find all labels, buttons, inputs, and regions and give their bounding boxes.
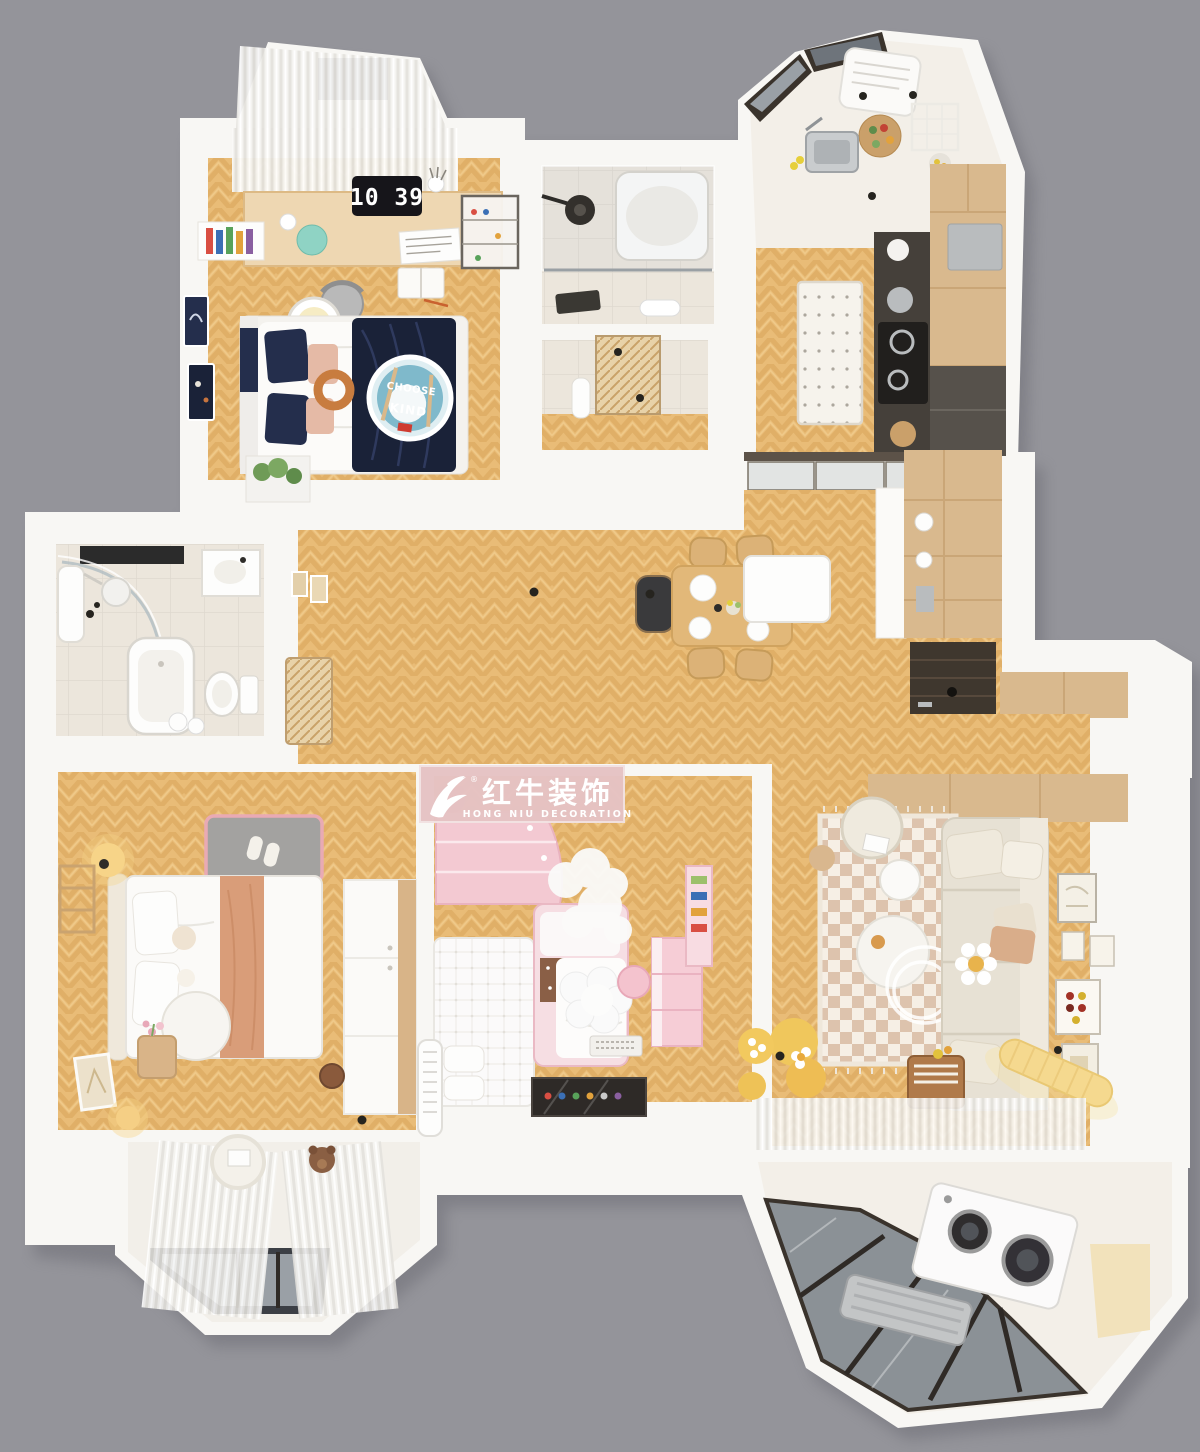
desk-tray: [297, 225, 327, 255]
bedside-lamp: [82, 834, 134, 886]
gray-bedside-mat: [206, 816, 322, 882]
plush-pillow: [177, 969, 195, 987]
room-kitchen: [744, 32, 1006, 490]
pedestal: [572, 378, 590, 418]
dining-chair-3: [687, 647, 725, 679]
leaning-art-frame: [75, 1054, 116, 1110]
armchair: [842, 798, 902, 858]
toy-display-case: [532, 1078, 646, 1116]
tall-wood-unit: [904, 450, 1002, 638]
cutting-board: [890, 421, 916, 447]
keyboard: [590, 1036, 642, 1056]
room-living: [756, 714, 1128, 1150]
master-pillow-1: [132, 891, 180, 956]
entry-door-niche: [910, 642, 996, 718]
dining-chair-1: [689, 537, 727, 569]
white-cabinet-band: [876, 488, 906, 638]
kids-chair: [618, 966, 650, 998]
kids-wardrobe: [436, 812, 562, 904]
side-table-round: [880, 860, 920, 900]
watermark-brand-en: HONG NIU DECORATION: [463, 809, 634, 820]
kettle: [887, 239, 909, 261]
toilet: [205, 672, 258, 716]
floorplan-canvas: 10 39: [0, 0, 1200, 1452]
kitchen-cabinets: [930, 164, 1006, 456]
white-sideboard: [744, 556, 830, 622]
vanity-sink: [202, 550, 260, 596]
stool: [320, 1064, 344, 1088]
croissant-plate: [871, 935, 885, 949]
microwave: [948, 224, 1002, 270]
fluffy-rug: [212, 1136, 264, 1188]
flip-clock-time: 10 39: [350, 185, 424, 211]
cup: [714, 604, 722, 612]
sliding-screen-door: [596, 336, 660, 414]
desk-paper: [399, 228, 461, 264]
kids-pillow-2: [444, 1076, 484, 1100]
mug: [280, 214, 296, 230]
kids-pillow-1: [444, 1046, 484, 1072]
pouf-small: [809, 845, 835, 871]
coffee-table-round: [857, 916, 929, 988]
west-curtain-2: [281, 1141, 398, 1319]
watermark-banner: ® 红牛装饰 HONG NIU DECORATION: [420, 766, 633, 822]
pillow-navy-2: [264, 393, 309, 446]
master-wardrobe: [344, 880, 416, 1114]
mirror-strip: [80, 546, 184, 564]
towel-roll: [640, 300, 680, 316]
dining-chair-4: [735, 648, 773, 681]
room-bathroom-left: [56, 544, 264, 736]
dining-floor-left: [298, 530, 744, 764]
kitchen-runner-rug: [798, 282, 862, 424]
room-bedroom-master: [58, 772, 416, 1138]
towel-1: [169, 713, 187, 731]
display-cabinet: [462, 196, 518, 268]
living-sheer-curtain: [756, 1098, 1086, 1150]
sofa-pillow-tan: [988, 925, 1036, 965]
kids-floor-bed: [434, 938, 534, 1106]
sofa-pillow-2: [1000, 840, 1044, 880]
pillow-navy-1: [264, 328, 310, 383]
black-chair: [636, 576, 674, 632]
air-purifier: [418, 1040, 442, 1136]
room-bathroom-top: [542, 166, 714, 324]
sofa-pillow-1: [945, 828, 1007, 879]
hanging-cabinet: [1000, 672, 1128, 718]
floor-lamp-2: [108, 1098, 148, 1138]
towel-2: [188, 718, 204, 734]
curtain-spill: [232, 128, 458, 192]
room-kids: [418, 776, 774, 1136]
wc-wood-strip: [542, 414, 708, 450]
cooktop: [878, 322, 928, 404]
balcony-west: [128, 1136, 420, 1322]
flip-clock: 10 39: [350, 176, 424, 216]
apartment-3d-floorplan-render: 10 39: [0, 0, 1200, 1452]
navy-throw: [240, 328, 258, 392]
watermark-brand-cn: 红牛装饰: [482, 776, 614, 810]
rattan-bench: [286, 658, 332, 744]
kitchen-counter: [874, 232, 932, 458]
ac-unit: [838, 47, 922, 117]
pot: [887, 287, 913, 313]
planter: [246, 456, 310, 502]
kids-wall-shelf: [686, 866, 712, 966]
registered-mark: ®: [470, 775, 478, 784]
teddy-bear: [309, 1146, 336, 1174]
laundry-wood-patch: [1090, 1244, 1150, 1338]
room-wc-top: [542, 336, 708, 450]
knot-pillow: [172, 926, 196, 950]
